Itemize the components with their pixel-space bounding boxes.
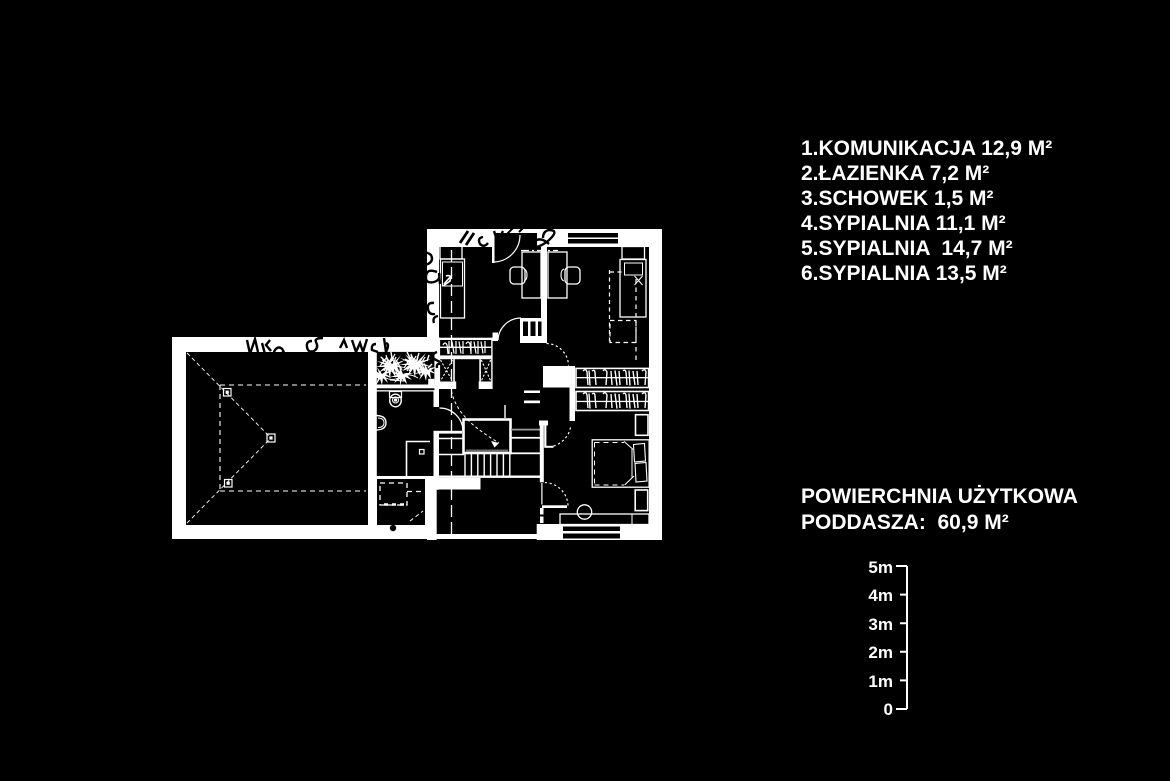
svg-text:3m: 3m (868, 615, 893, 634)
svg-text:4m: 4m (868, 586, 893, 605)
svg-text:1m: 1m (868, 672, 893, 691)
svg-text:5m: 5m (868, 558, 893, 577)
svg-text:2m: 2m (868, 643, 893, 662)
svg-text:0: 0 (884, 700, 893, 719)
